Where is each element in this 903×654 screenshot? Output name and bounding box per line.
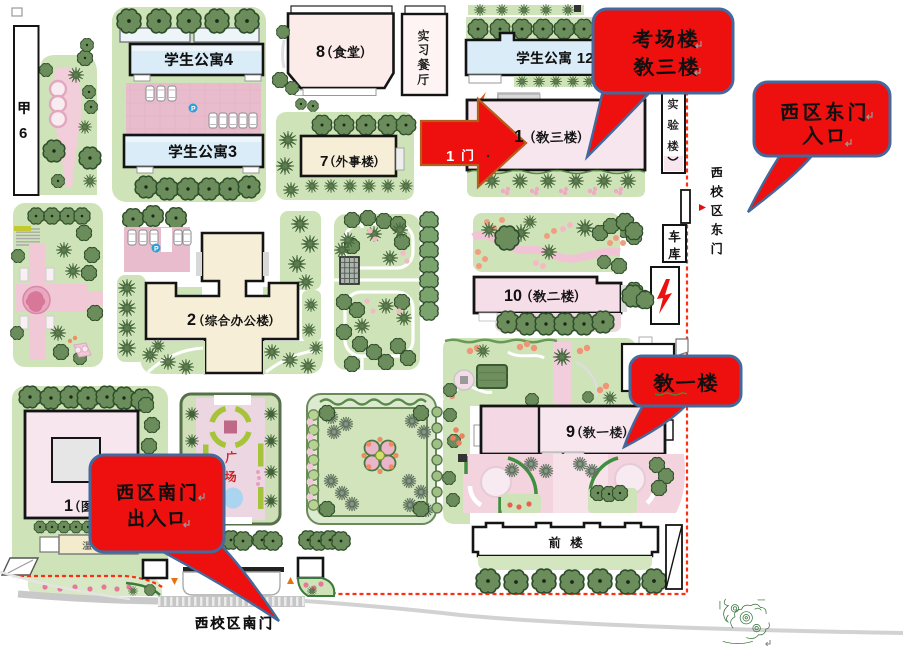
svg-text:9: 9 [566, 423, 575, 441]
svg-text:4: 4 [224, 51, 233, 69]
svg-text:1: 1 [64, 497, 73, 515]
svg-text:8: 8 [316, 43, 325, 61]
svg-text:2: 2 [187, 311, 196, 329]
svg-text:12: 12 [577, 50, 594, 67]
svg-text:1: 1 [514, 126, 524, 146]
svg-text:P: P [191, 106, 196, 113]
svg-text:6: 6 [19, 125, 27, 142]
svg-text:7: 7 [320, 153, 328, 170]
svg-text:10: 10 [504, 287, 522, 305]
svg-text:1: 1 [446, 148, 454, 165]
svg-text:P: P [154, 246, 159, 253]
svg-text:3: 3 [228, 143, 237, 161]
